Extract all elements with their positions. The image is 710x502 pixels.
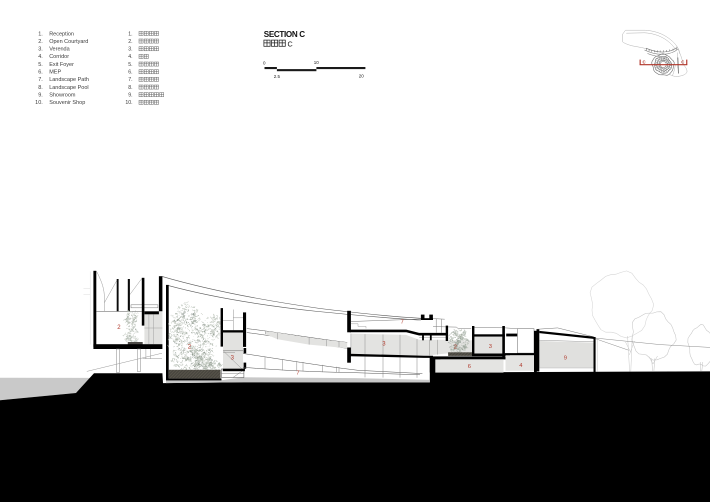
svg-text:3.: 3. — [128, 47, 132, 53]
svg-text:Landscape Pool: Landscape Pool — [49, 85, 88, 91]
svg-text:5.: 5. — [128, 62, 132, 68]
svg-text:Reception: Reception — [49, 31, 74, 37]
svg-text:7: 7 — [296, 371, 299, 377]
svg-text:4.: 4. — [128, 54, 132, 60]
svg-text:3: 3 — [489, 344, 492, 350]
svg-text:2.5: 2.5 — [274, 74, 281, 79]
svg-text:C: C — [681, 60, 684, 65]
svg-text:10.: 10. — [125, 100, 132, 106]
svg-text:10.: 10. — [35, 100, 43, 106]
svg-text:Verenda: Verenda — [49, 47, 70, 53]
svg-text:C: C — [643, 60, 646, 65]
svg-text:2.: 2. — [38, 39, 43, 45]
svg-text:Showroom: Showroom — [49, 93, 76, 99]
svg-text:4.: 4. — [38, 54, 43, 60]
svg-text:C: C — [288, 40, 293, 49]
svg-text:8.: 8. — [128, 85, 132, 91]
svg-text:8.: 8. — [38, 85, 43, 91]
svg-text:6.: 6. — [128, 70, 132, 76]
svg-text:2.: 2. — [128, 39, 132, 45]
svg-text:MEP: MEP — [49, 70, 61, 76]
svg-text:2: 2 — [454, 344, 457, 350]
svg-text:Open Courtyard: Open Courtyard — [49, 39, 88, 45]
svg-text:9.: 9. — [128, 93, 132, 99]
svg-text:10: 10 — [314, 60, 320, 65]
svg-text:SECTION C: SECTION C — [264, 30, 305, 39]
svg-text:1.: 1. — [38, 31, 43, 37]
svg-text:20: 20 — [359, 73, 365, 78]
svg-text:3.: 3. — [38, 47, 43, 53]
svg-text:Corridor: Corridor — [49, 54, 69, 60]
svg-text:9: 9 — [564, 356, 567, 362]
svg-text:5.: 5. — [38, 62, 43, 68]
svg-text:9.: 9. — [38, 93, 43, 99]
svg-text:1.: 1. — [128, 31, 132, 37]
svg-text:6: 6 — [468, 364, 471, 370]
svg-text:7: 7 — [401, 319, 404, 325]
svg-text:Exit Foyer: Exit Foyer — [49, 62, 74, 68]
svg-text:6.: 6. — [38, 70, 43, 76]
svg-text:7.: 7. — [128, 77, 132, 83]
svg-text:7.: 7. — [38, 77, 43, 83]
svg-text:Landscape Path: Landscape Path — [49, 77, 89, 83]
svg-text:Souvenir Shop: Souvenir Shop — [49, 100, 85, 106]
